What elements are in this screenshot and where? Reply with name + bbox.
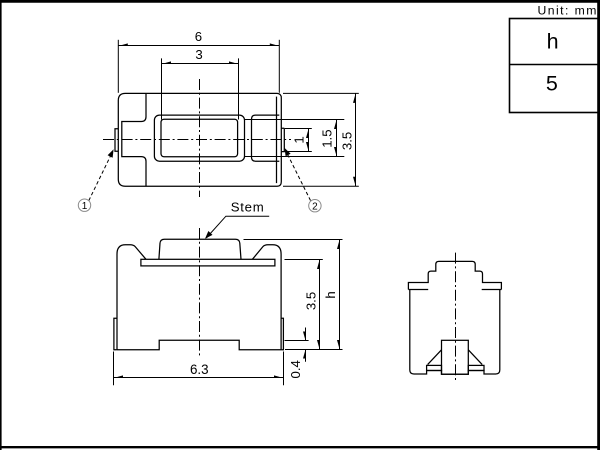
svg-text:Unit: mm: Unit: mm xyxy=(538,4,598,18)
svg-text:3: 3 xyxy=(195,47,202,62)
svg-text:1.5: 1.5 xyxy=(319,129,334,147)
svg-text:Stem: Stem xyxy=(231,200,265,215)
svg-text:3.5: 3.5 xyxy=(303,292,318,310)
svg-text:1: 1 xyxy=(291,136,306,143)
svg-text:5: 5 xyxy=(546,72,558,96)
svg-text:3.5: 3.5 xyxy=(339,132,354,150)
svg-text:h: h xyxy=(323,291,338,298)
svg-text:2: 2 xyxy=(312,201,318,212)
svg-text:h: h xyxy=(547,30,559,54)
svg-text:0.4: 0.4 xyxy=(288,360,303,378)
svg-text:1: 1 xyxy=(82,201,88,212)
svg-text:6: 6 xyxy=(195,29,202,44)
svg-text:6.3: 6.3 xyxy=(190,362,209,377)
